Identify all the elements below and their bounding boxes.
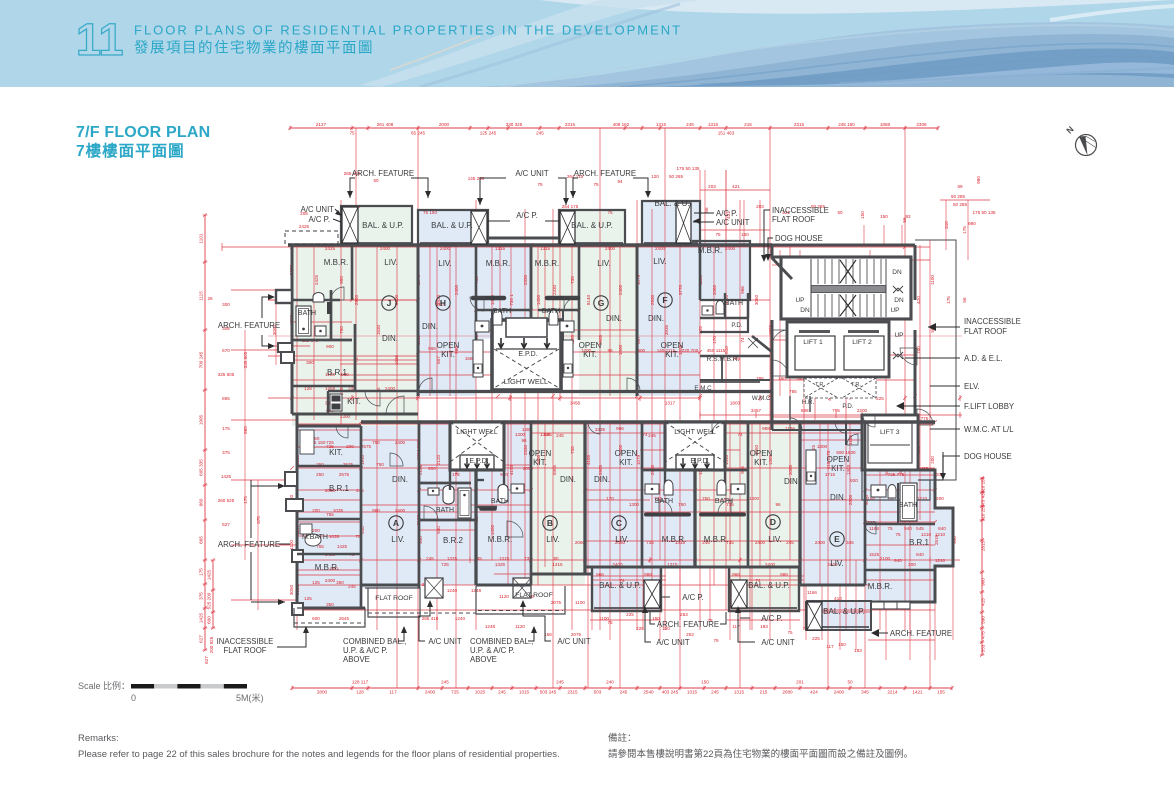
svg-text:700 245: 700 245	[199, 351, 204, 368]
svg-text:245: 245	[556, 680, 564, 685]
svg-text:225: 225	[812, 636, 820, 641]
svg-text:175: 175	[199, 568, 204, 576]
svg-text:OPEN: OPEN	[529, 449, 552, 458]
svg-text:2127: 2127	[316, 122, 327, 127]
svg-text:M.B.R.: M.B.R.	[324, 258, 348, 267]
svg-text:OPEN: OPEN	[615, 449, 638, 458]
svg-text:725: 725	[441, 562, 449, 567]
svg-text:OPEN: OPEN	[579, 341, 602, 350]
svg-text:KIT.: KIT.	[665, 350, 679, 359]
svg-text:175 50 135: 175 50 135	[677, 166, 700, 171]
svg-text:245 180: 245 180	[838, 122, 855, 127]
svg-text:UP: UP	[890, 307, 899, 314]
svg-text:M.B.R.: M.B.R.	[535, 259, 559, 268]
svg-text:260 525: 260 525	[218, 498, 235, 503]
svg-text:1315: 1315	[656, 122, 667, 127]
svg-text:LIGHT WELL: LIGHT WELL	[674, 429, 716, 436]
svg-text:1168: 1168	[869, 526, 879, 531]
svg-text:175: 175	[243, 496, 248, 504]
svg-text:LIV.: LIV.	[597, 259, 611, 268]
svg-text:75: 75	[593, 182, 599, 187]
svg-text:605 335: 605 335	[199, 459, 204, 476]
svg-text:FLAT ROOF: FLAT ROOF	[375, 595, 413, 602]
svg-text:UP: UP	[795, 297, 804, 304]
svg-text:LIV.: LIV.	[438, 259, 452, 268]
svg-text:A/C UNIT: A/C UNIT	[515, 169, 549, 178]
svg-text:988: 988	[780, 572, 788, 577]
svg-text:E.M.C: E.M.C	[694, 385, 712, 392]
svg-text:B.R.1: B.R.1	[327, 368, 348, 377]
svg-text:175: 175	[222, 426, 230, 431]
svg-text:BATH: BATH	[493, 308, 511, 315]
svg-text:2575: 2575	[361, 444, 372, 449]
svg-text:988: 988	[644, 572, 652, 577]
svg-text:610: 610	[724, 346, 729, 354]
svg-text:KIT.: KIT.	[831, 464, 845, 473]
svg-text:245: 245	[786, 540, 794, 545]
svg-text:525 200: 525 200	[207, 592, 212, 609]
svg-text:BAL. & U.P.: BAL. & U.P.	[571, 221, 613, 230]
svg-text:96: 96	[775, 502, 781, 507]
svg-text:840: 840	[938, 526, 946, 531]
svg-text:2085: 2085	[788, 464, 793, 475]
svg-text:A/C UNIT: A/C UNIT	[761, 638, 795, 647]
svg-text:627: 627	[199, 635, 204, 643]
svg-text:335 605: 335 605	[243, 351, 248, 368]
svg-text:1100: 1100	[599, 616, 609, 621]
svg-text:KIT.: KIT.	[329, 448, 343, 457]
svg-text:DIN.: DIN.	[606, 314, 622, 323]
svg-text:1315: 1315	[708, 122, 719, 127]
svg-text:940: 940	[904, 526, 912, 531]
svg-text:KIT.: KIT.	[533, 458, 547, 467]
svg-text:DIN.: DIN.	[594, 475, 610, 484]
svg-text:74: 74	[737, 432, 743, 437]
svg-text:DIN.: DIN.	[784, 477, 800, 486]
svg-text:2315: 2315	[794, 122, 805, 127]
svg-text:LIV.: LIV.	[384, 258, 398, 267]
svg-text:350: 350	[336, 580, 344, 585]
svg-text:DIN.: DIN.	[392, 475, 408, 484]
svg-text:150: 150	[701, 680, 709, 685]
svg-text:980: 980	[372, 508, 380, 513]
svg-text:627: 627	[204, 656, 209, 664]
svg-text:75: 75	[715, 232, 721, 237]
svg-text:375: 375	[199, 592, 204, 600]
svg-text:ARCH. FEATURE: ARCH. FEATURE	[890, 629, 952, 638]
svg-text:B.R.2: B.R.2	[443, 536, 464, 545]
svg-text:1000: 1000	[618, 344, 623, 355]
svg-text:1315: 1315	[687, 690, 698, 695]
svg-text:345: 345	[846, 540, 854, 545]
svg-text:245: 245	[711, 690, 719, 695]
svg-text:M.B.R.: M.B.R.	[698, 246, 722, 255]
svg-text:735: 735	[570, 446, 575, 454]
svg-text:ARCH. FEATURE: ARCH. FEATURE	[218, 321, 280, 330]
svg-text:750: 750	[678, 502, 686, 507]
svg-text:W.M.C. AT L/L: W.M.C. AT L/L	[964, 425, 1014, 434]
svg-text:2330: 2330	[523, 444, 528, 455]
svg-text:200: 200	[930, 456, 935, 464]
svg-text:75: 75	[895, 532, 901, 537]
svg-text:1300: 1300	[629, 502, 640, 507]
svg-text:261 408: 261 408	[377, 122, 394, 127]
svg-text:1210: 1210	[935, 558, 946, 563]
svg-text:1300: 1300	[817, 444, 828, 449]
svg-text:C: C	[616, 518, 622, 528]
svg-text:735: 735	[646, 540, 654, 545]
svg-text:1300: 1300	[749, 496, 760, 501]
svg-text:785: 785	[789, 389, 797, 394]
svg-text:BATH: BATH	[715, 498, 733, 505]
svg-text:3458: 3458	[570, 401, 581, 406]
svg-text:M.B.R.: M.B.R.	[488, 535, 512, 544]
svg-text:150: 150	[838, 642, 846, 647]
svg-text:E: E	[834, 534, 840, 544]
svg-text:56: 56	[962, 297, 967, 303]
svg-text:245: 245	[498, 690, 506, 695]
svg-text:T.R.: T.R.	[815, 382, 825, 388]
svg-text:7樓樓面平面圖: 7樓樓面平面圖	[76, 141, 185, 160]
svg-text:P.D.: P.D.	[731, 322, 743, 329]
svg-text:96: 96	[521, 438, 527, 443]
svg-text:BATH: BATH	[655, 498, 673, 505]
svg-text:UP: UP	[894, 332, 903, 339]
svg-text:A.D. & E.L.: A.D. & E.L.	[964, 354, 1003, 363]
svg-text:865: 865	[243, 426, 248, 434]
svg-text:M.B.R.: M.B.R.	[315, 563, 339, 572]
svg-text:BATH: BATH	[298, 310, 316, 317]
svg-text:424: 424	[810, 690, 818, 695]
svg-text:7/F FLOOR PLAN: 7/F FLOOR PLAN	[76, 124, 210, 141]
svg-text:1315: 1315	[519, 690, 530, 695]
svg-text:ARCH. FEATURE: ARCH. FEATURE	[352, 169, 414, 178]
svg-text:535: 535	[544, 432, 552, 437]
svg-text:A/C UNIT: A/C UNIT	[716, 218, 750, 227]
svg-text:450 1115: 450 1115	[707, 348, 726, 353]
svg-text:2400: 2400	[755, 540, 766, 545]
svg-text:KIT.: KIT.	[347, 397, 361, 406]
svg-text:1803: 1803	[730, 401, 741, 406]
svg-text:2080: 2080	[712, 284, 717, 295]
svg-text:KIT.: KIT.	[441, 350, 455, 359]
svg-text:840: 840	[916, 552, 924, 557]
svg-text:0: 0	[131, 693, 136, 703]
svg-text:2575: 2575	[339, 472, 350, 477]
svg-text:415: 415	[981, 598, 986, 606]
svg-text:310: 310	[944, 221, 949, 229]
svg-text:FLAT ROOF: FLAT ROOF	[223, 646, 266, 655]
svg-text:300: 300	[222, 302, 230, 307]
svg-text:BATH: BATH	[725, 300, 743, 307]
svg-text:75: 75	[349, 131, 355, 136]
svg-text:1210: 1210	[921, 532, 932, 537]
svg-text:200: 200	[936, 496, 944, 501]
svg-text:795: 795	[832, 408, 840, 413]
svg-text:1120: 1120	[515, 624, 525, 629]
svg-text:BAL. & U.P.: BAL. & U.P.	[823, 607, 865, 616]
svg-text:DOG HOUSE: DOG HOUSE	[775, 234, 823, 243]
svg-text:940: 940	[894, 558, 902, 563]
svg-text:200: 200	[908, 562, 916, 567]
svg-text:發展項目的住宅物業的樓面平面圖: 發展項目的住宅物業的樓面平面圖	[134, 40, 374, 57]
svg-text:245: 245	[686, 122, 694, 127]
svg-text:2400: 2400	[325, 578, 336, 583]
svg-text:D: D	[770, 517, 776, 527]
svg-text:1100: 1100	[575, 600, 585, 605]
svg-text:3770: 3770	[678, 284, 683, 295]
svg-text:900: 900	[981, 578, 986, 586]
svg-text:KIT.: KIT.	[754, 458, 768, 467]
svg-text:ABOVE: ABOVE	[470, 655, 497, 664]
svg-text:2800: 2800	[317, 690, 328, 695]
svg-text:950: 950	[339, 276, 344, 284]
svg-text:56: 56	[902, 217, 907, 223]
svg-text:750: 750	[372, 440, 380, 445]
svg-text:96: 96	[607, 348, 613, 353]
svg-text:BATH: BATH	[542, 308, 560, 315]
svg-text:1325: 1325	[447, 556, 458, 561]
svg-text:BAL. & U.P.: BAL. & U.P.	[431, 221, 473, 230]
svg-text:2400: 2400	[395, 508, 406, 513]
svg-text:600: 600	[312, 616, 320, 621]
svg-text:300: 300	[306, 360, 314, 365]
svg-text:150: 150	[741, 232, 749, 237]
svg-text:4155: 4155	[509, 464, 514, 475]
svg-text:DN: DN	[894, 297, 904, 304]
svg-text:26: 26	[207, 296, 213, 301]
svg-text:375: 375	[256, 516, 261, 524]
svg-text:50: 50	[837, 210, 843, 215]
svg-text:8140: 8140	[586, 294, 591, 305]
svg-text:A/C P.: A/C P.	[682, 593, 704, 602]
svg-text:1450: 1450	[536, 294, 541, 305]
svg-text:E.P.D.: E.P.D.	[690, 458, 709, 465]
svg-text:N: N	[1064, 124, 1075, 135]
svg-text:56: 56	[704, 207, 709, 213]
svg-text:H.R.: H.R.	[802, 399, 815, 406]
svg-text:50: 50	[373, 178, 379, 183]
svg-text:2815: 2815	[981, 540, 986, 551]
svg-text:OPEN: OPEN	[750, 449, 773, 458]
svg-text:OPEN: OPEN	[661, 341, 684, 350]
svg-text:250: 250	[316, 472, 324, 477]
svg-text:P.D.: P.D.	[842, 403, 854, 410]
svg-text:215: 215	[760, 690, 768, 695]
svg-text:M.B.R.: M.B.R.	[486, 259, 510, 268]
svg-text:725: 725	[326, 440, 334, 445]
svg-text:170: 170	[606, 496, 614, 501]
svg-text:DIN.: DIN.	[422, 322, 438, 331]
svg-text:1240: 1240	[447, 588, 458, 593]
svg-text:503 245: 503 245	[540, 690, 557, 695]
svg-text:117: 117	[389, 690, 397, 695]
svg-text:E.P.D.: E.P.D.	[518, 351, 537, 358]
svg-text:2200: 2200	[848, 494, 853, 505]
svg-text:5905: 5905	[598, 464, 603, 475]
svg-text:1317: 1317	[665, 401, 676, 406]
svg-text:INACCESSIBLE: INACCESSIBLE	[964, 317, 1021, 326]
svg-text:1025: 1025	[475, 690, 486, 695]
svg-text:203: 203	[708, 184, 716, 189]
svg-text:1166: 1166	[807, 590, 817, 595]
svg-text:ARCH. FEATURE: ARCH. FEATURE	[657, 620, 719, 629]
svg-text:2425: 2425	[314, 274, 319, 285]
svg-text:75: 75	[537, 182, 543, 187]
svg-text:170: 170	[712, 336, 717, 344]
svg-text:475: 475	[981, 631, 986, 639]
svg-text:750: 750	[702, 496, 710, 501]
svg-text:INACCESSIBLE: INACCESSIBLE	[772, 206, 829, 215]
svg-text:200: 200	[312, 508, 320, 513]
svg-text:DIN.: DIN.	[648, 314, 664, 323]
svg-text:LIFT 1: LIFT 1	[803, 339, 823, 346]
svg-text:1035: 1035	[333, 508, 344, 513]
svg-text:75: 75	[887, 526, 893, 531]
svg-text:183: 183	[854, 648, 862, 653]
svg-text:1315: 1315	[552, 562, 563, 567]
svg-text:860: 860	[199, 498, 204, 506]
svg-text:請參閱本售樓說明書第22頁為住宅物業的樓面平面圖而設之備註及: 請參閱本售樓說明書第22頁為住宅物業的樓面平面圖而設之備註及圖例。	[608, 748, 913, 760]
svg-text:A: A	[393, 518, 399, 528]
svg-text:117: 117	[732, 624, 740, 629]
svg-text:B.R.1: B.R.1	[329, 484, 350, 493]
svg-text:E.P.D.: E.P.D.	[469, 458, 488, 465]
svg-text:350: 350	[326, 602, 334, 607]
svg-text:2425: 2425	[299, 224, 310, 229]
svg-text:150: 150	[880, 214, 888, 219]
svg-text:2200: 2200	[857, 408, 868, 413]
svg-text:A/C UNIT: A/C UNIT	[656, 638, 690, 647]
svg-text:2080: 2080	[782, 690, 793, 695]
svg-text:A/C UNIT: A/C UNIT	[557, 637, 591, 646]
svg-text:1425: 1425	[199, 612, 204, 623]
svg-text:FLAT ROOF: FLAT ROOF	[515, 592, 553, 599]
svg-text:2930: 2930	[354, 294, 359, 305]
svg-text:172: 172	[452, 472, 460, 477]
svg-text:1325: 1325	[495, 562, 506, 567]
svg-text:253: 253	[686, 632, 694, 637]
svg-text:2645: 2645	[339, 616, 350, 621]
svg-text:4155: 4155	[586, 454, 591, 465]
svg-text:2400: 2400	[815, 540, 826, 545]
svg-text:264 175: 264 175	[562, 204, 579, 209]
svg-text:1120: 1120	[499, 594, 509, 599]
svg-text:2315: 2315	[567, 690, 578, 695]
svg-text:1115: 1115	[199, 291, 204, 301]
svg-text:2100: 2100	[880, 556, 891, 561]
svg-text:980: 980	[976, 176, 981, 184]
svg-text:50 285: 50 285	[953, 202, 967, 207]
svg-text:408 162: 408 162	[613, 122, 630, 127]
svg-text:155: 155	[937, 690, 945, 695]
svg-text:2400: 2400	[834, 690, 845, 695]
svg-text:725 775: 725 775	[888, 472, 905, 477]
svg-text:245: 245	[348, 584, 356, 589]
svg-text:1315: 1315	[499, 556, 510, 561]
svg-text:920: 920	[850, 478, 858, 483]
svg-text:11: 11	[76, 14, 124, 65]
svg-text:M.B.R.: M.B.R.	[868, 582, 892, 591]
svg-text:1830: 1830	[376, 324, 381, 335]
svg-text:240: 240	[606, 680, 614, 685]
svg-text:DN: DN	[800, 307, 810, 314]
svg-text:2400: 2400	[395, 440, 406, 445]
svg-text:245: 245	[536, 131, 544, 136]
svg-text:665: 665	[199, 536, 204, 544]
svg-text:2120: 2120	[436, 454, 441, 465]
svg-text:DIN.: DIN.	[382, 334, 398, 343]
svg-text:220 700: 220 700	[682, 348, 699, 353]
svg-text:DN: DN	[892, 269, 902, 276]
svg-text:LIV.: LIV.	[653, 257, 667, 266]
svg-text:2308: 2308	[916, 122, 927, 127]
svg-text:245: 245	[620, 690, 628, 695]
svg-text:BATH: BATH	[899, 502, 917, 509]
svg-text:988: 988	[762, 426, 770, 431]
svg-text:F: F	[662, 295, 667, 305]
svg-text:BAL. & U.P.: BAL. & U.P.	[599, 581, 641, 590]
svg-text:117: 117	[826, 644, 834, 649]
svg-text:R.S.M.B.R.: R.S.M.B.R.	[707, 356, 740, 363]
svg-text:3935: 3935	[664, 324, 669, 335]
svg-text:1185: 1185	[848, 435, 853, 445]
svg-text:201: 201	[796, 680, 804, 685]
svg-text:125: 125	[312, 580, 320, 585]
svg-text:2400: 2400	[454, 284, 459, 295]
svg-text:F.LIFT LOBBY: F.LIFT LOBBY	[964, 402, 1015, 411]
svg-text:200: 200	[312, 528, 320, 533]
svg-text:285 418: 285 418	[422, 616, 439, 621]
svg-text:ELV.: ELV.	[964, 382, 980, 391]
svg-text:600: 600	[207, 616, 212, 624]
svg-text:128: 128	[356, 690, 364, 695]
svg-text:750: 750	[376, 462, 384, 467]
svg-text:2315: 2315	[565, 122, 576, 127]
svg-text:865: 865	[222, 396, 230, 401]
svg-text:OPEN: OPEN	[437, 341, 460, 350]
svg-text:76: 76	[713, 638, 719, 643]
svg-text:KIT.: KIT.	[583, 350, 597, 359]
svg-text:175: 175	[946, 296, 951, 304]
svg-text:OPEN: OPEN	[827, 455, 850, 464]
svg-text:LIV.: LIV.	[830, 559, 844, 568]
svg-text:245: 245	[556, 433, 564, 438]
svg-text:3050: 3050	[754, 294, 759, 305]
svg-text:5M(米): 5M(米)	[236, 692, 264, 703]
svg-text:備註：: 備註：	[608, 732, 637, 744]
svg-text:2330: 2330	[523, 274, 528, 285]
svg-text:A/C UNIT: A/C UNIT	[428, 637, 462, 646]
svg-text:50 285: 50 285	[951, 194, 965, 199]
svg-text:1035: 1035	[329, 534, 340, 539]
svg-text:735 1: 735 1	[509, 294, 514, 306]
svg-text:2400: 2400	[425, 690, 436, 695]
svg-text:LIFT 3: LIFT 3	[880, 429, 900, 436]
svg-text:1425: 1425	[221, 474, 232, 479]
svg-text:750: 750	[339, 326, 344, 334]
svg-text:LIV.: LIV.	[391, 535, 405, 544]
svg-text:BAL. & U.P.: BAL. & U.P.	[362, 221, 404, 230]
svg-text:LIGHT WELL: LIGHT WELL	[456, 429, 498, 436]
svg-text:968: 968	[428, 346, 436, 351]
svg-text:A/C P.: A/C P.	[716, 209, 738, 218]
svg-text:LIGHT WELL: LIGHT WELL	[504, 377, 548, 386]
svg-text:3457: 3457	[751, 408, 762, 413]
svg-text:1101: 1101	[199, 233, 204, 243]
svg-text:ARCH. FEATURE: ARCH. FEATURE	[218, 540, 280, 549]
svg-text:BAL. & U.: BAL. & U.	[654, 199, 689, 208]
